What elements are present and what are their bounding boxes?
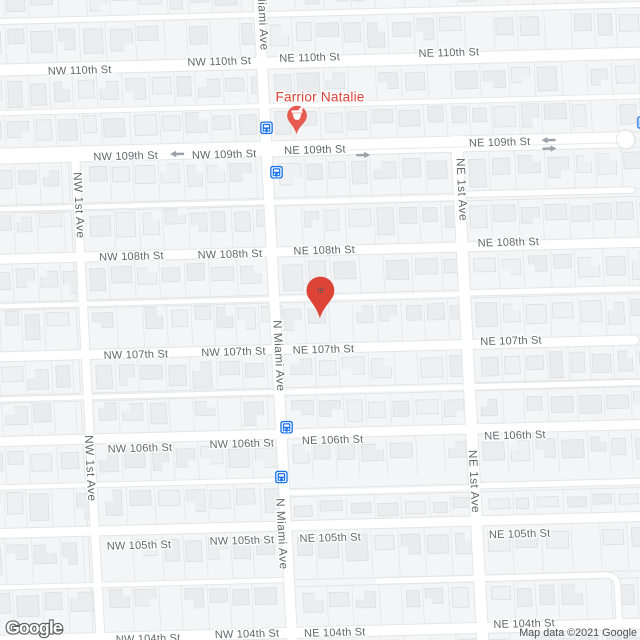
- svg-text:NW 104th St: NW 104th St: [214, 628, 279, 640]
- svg-text:NE 106th St: NE 106th St: [302, 434, 364, 448]
- svg-text:NW 106th St: NW 106th St: [209, 437, 274, 451]
- svg-text:NW 105th St: NW 105th St: [209, 534, 274, 548]
- svg-text:NE 107th St: NE 107th St: [480, 335, 542, 349]
- svg-text:NE 104th St: NE 104th St: [304, 626, 366, 640]
- svg-text:NW 108th St: NW 108th St: [197, 248, 262, 262]
- svg-text:Google: Google: [6, 618, 63, 638]
- svg-text:NW 110th St: NW 110th St: [187, 55, 251, 69]
- svg-text:NW 106th St: NW 106th St: [107, 442, 172, 456]
- svg-text:NE 109th St: NE 109th St: [284, 144, 346, 158]
- svg-text:NE 107th St: NE 107th St: [292, 343, 354, 357]
- svg-text:NW 110th St: NW 110th St: [48, 64, 112, 78]
- svg-text:NW 104th St: NW 104th St: [116, 632, 181, 640]
- svg-text:NE 109th St: NE 109th St: [469, 136, 531, 150]
- svg-text:NE 105th St: NE 105th St: [489, 528, 551, 542]
- svg-text:NE 110th St: NE 110th St: [279, 51, 340, 65]
- svg-text:NE 105th St: NE 105th St: [299, 531, 361, 545]
- svg-text:NW 105th St: NW 105th St: [106, 539, 171, 553]
- svg-text:NE 108th St: NE 108th St: [477, 236, 539, 250]
- svg-text:NE 108th St: NE 108th St: [293, 244, 355, 258]
- svg-text:NE 110th St: NE 110th St: [418, 46, 479, 60]
- svg-text:NW 109th St: NW 109th St: [93, 150, 158, 164]
- svg-text:NW 107th St: NW 107th St: [103, 348, 168, 362]
- svg-text:NE 106th St: NE 106th St: [484, 429, 546, 443]
- svg-text:NW 107th St: NW 107th St: [201, 346, 266, 360]
- svg-text:NW 109th St: NW 109th St: [192, 148, 257, 162]
- svg-text:Farrior Natalie: Farrior Natalie: [275, 90, 364, 105]
- svg-text:Map data ©2021 Google: Map data ©2021 Google: [519, 627, 637, 639]
- svg-text:NW 108th St: NW 108th St: [99, 250, 164, 264]
